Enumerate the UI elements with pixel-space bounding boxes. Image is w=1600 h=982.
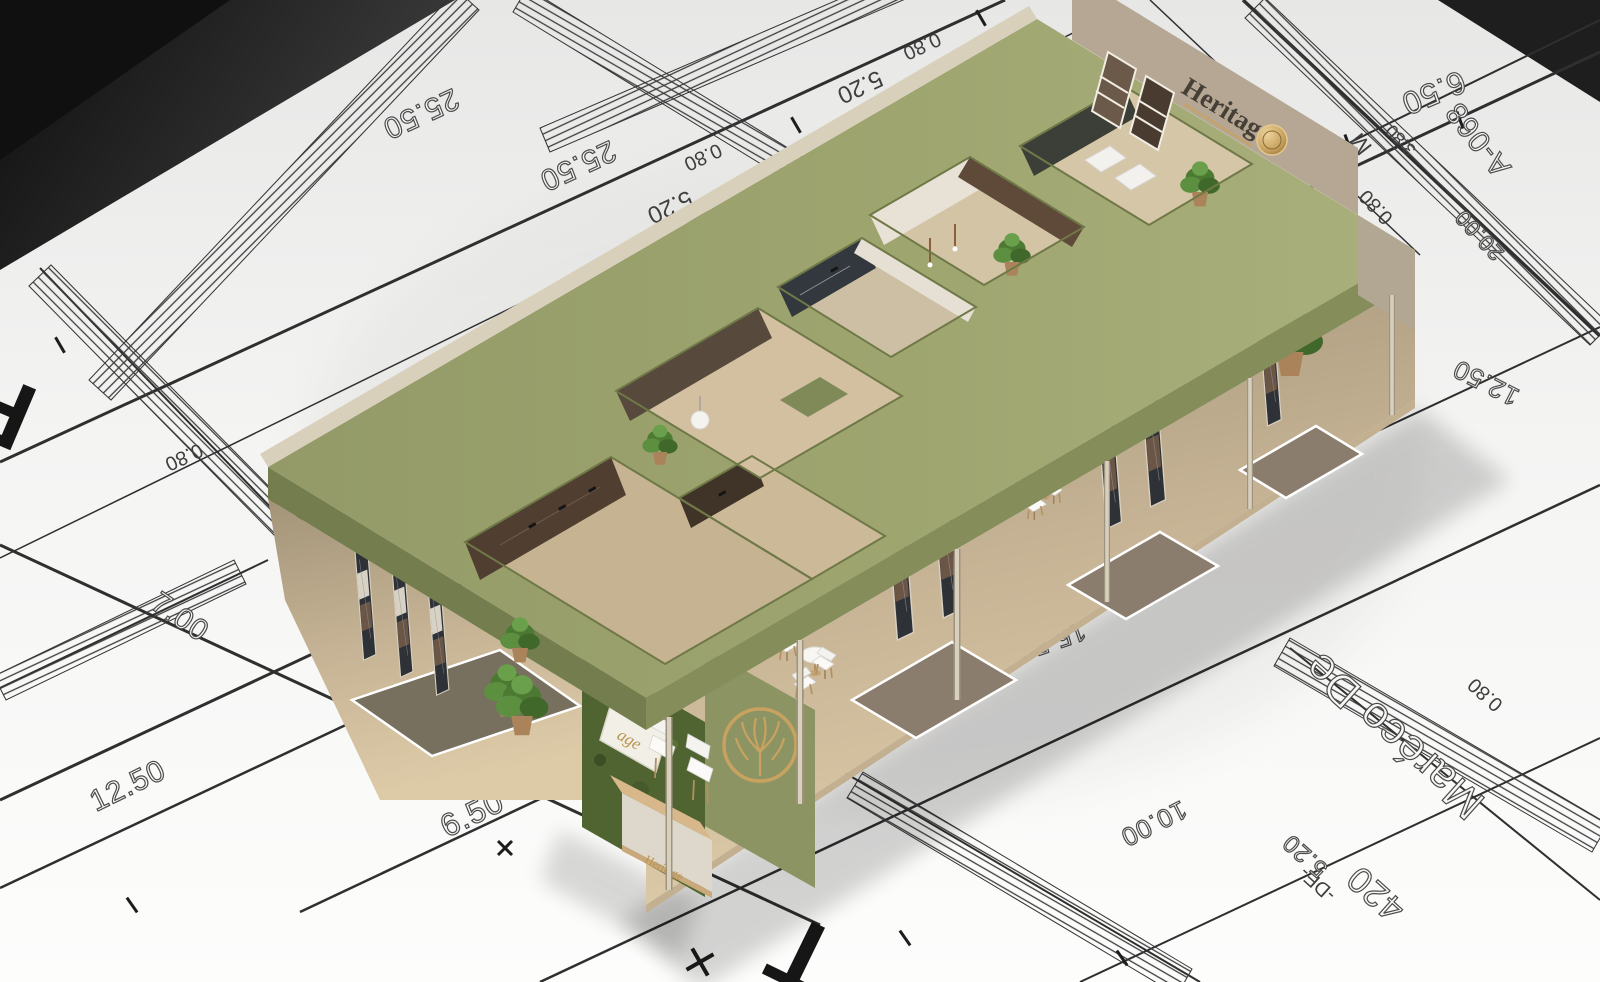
screenshot-root: 25.50 25.50 5.20 5.20 0.80 0.80 0.80 0.8… xyxy=(0,0,1600,982)
gold-medallion-logo xyxy=(1257,125,1287,155)
render-canvas: 25.50 25.50 5.20 5.20 0.80 0.80 0.80 0.8… xyxy=(0,0,1600,982)
